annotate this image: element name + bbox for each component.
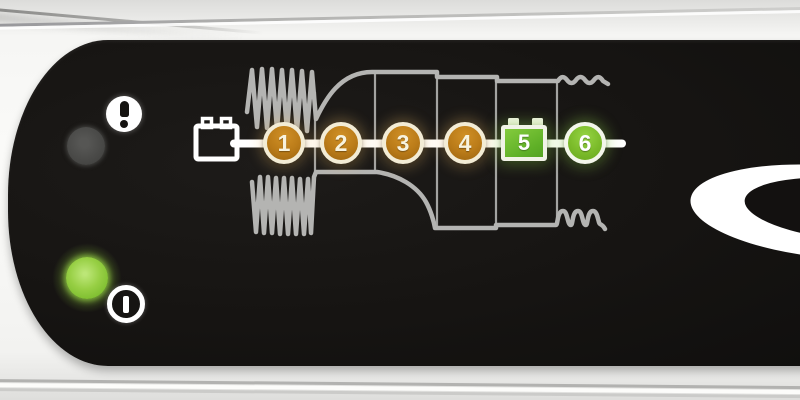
brand-logo [0, 0, 800, 400]
